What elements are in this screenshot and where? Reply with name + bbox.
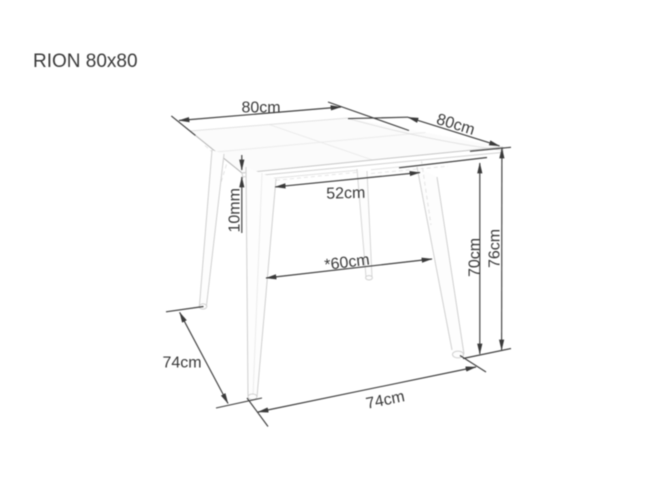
svg-text:74cm: 74cm [365, 388, 407, 412]
svg-text:74cm: 74cm [163, 354, 202, 371]
svg-text:*60cm: *60cm [324, 252, 371, 274]
svg-text:76cm: 76cm [486, 229, 503, 268]
svg-text:10mm: 10mm [226, 188, 243, 232]
svg-text:70cm: 70cm [466, 238, 483, 277]
svg-text:52cm: 52cm [326, 185, 366, 203]
svg-text:80cm: 80cm [242, 99, 281, 116]
svg-text:RION 80x80: RION 80x80 [33, 51, 138, 72]
svg-text:80cm: 80cm [434, 111, 476, 139]
